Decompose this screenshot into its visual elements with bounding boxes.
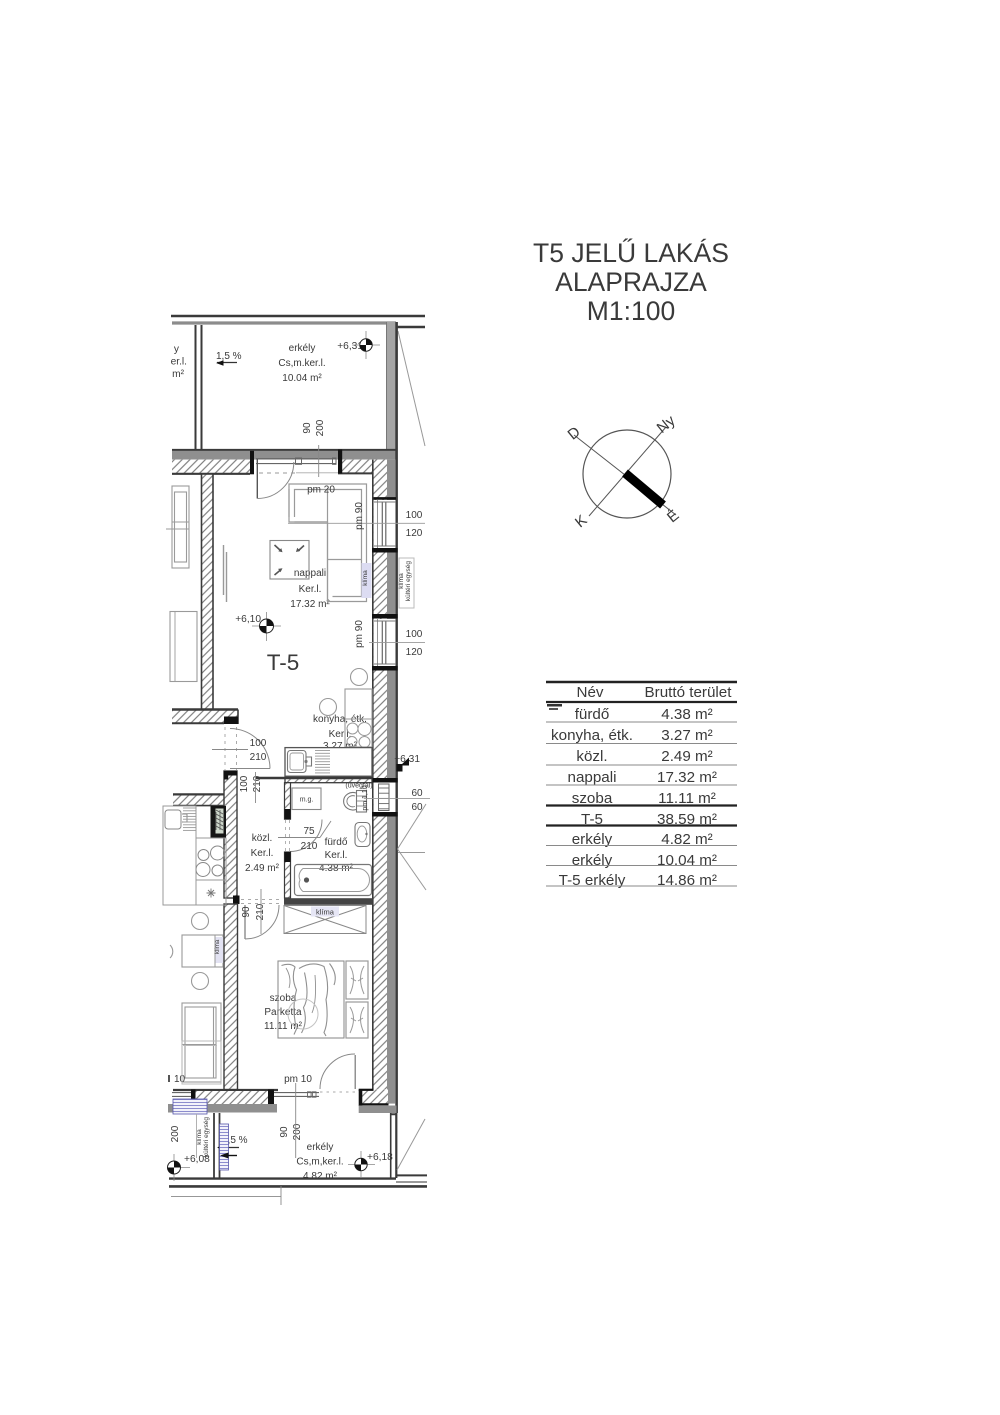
svg-text:210: 210	[250, 752, 267, 763]
svg-text:klíma: klíma	[215, 939, 221, 954]
svg-text:Cs,m,ker.l.: Cs,m,ker.l.	[296, 1157, 343, 1168]
svg-text:erkély: erkély	[307, 1142, 334, 1153]
svg-text:+6,18: +6,18	[367, 1152, 393, 1163]
svg-text:közl.: közl.	[252, 833, 273, 844]
svg-text:Bruttó terület: Bruttó terület	[645, 684, 733, 701]
svg-text:klíma: klíma	[316, 908, 335, 917]
svg-text:100: 100	[406, 510, 423, 521]
svg-text:3.27 m²: 3.27 m²	[661, 727, 713, 744]
svg-text:erkély: erkély	[289, 343, 316, 354]
svg-text:200: 200	[292, 1123, 303, 1140]
svg-text:75: 75	[303, 826, 315, 837]
svg-text:17.32 m²: 17.32 m²	[290, 599, 330, 610]
svg-text:210: 210	[255, 903, 266, 920]
svg-text:17.32 m²: 17.32 m²	[657, 769, 717, 786]
svg-text:kültéri egység: kültéri egység	[203, 1117, 210, 1157]
svg-text:Ker.l.: Ker.l.	[299, 584, 322, 595]
svg-text:120: 120	[406, 647, 423, 658]
svg-text:10.04 m²: 10.04 m²	[657, 852, 717, 869]
svg-text:klíma: klíma	[196, 1129, 203, 1145]
svg-text:Parketta: Parketta	[264, 1007, 302, 1018]
svg-text:100: 100	[250, 738, 267, 749]
svg-text:erkély: erkély	[572, 852, 613, 869]
svg-text:200: 200	[315, 419, 326, 436]
svg-text:90: 90	[302, 422, 313, 434]
svg-text:4.82 m²: 4.82 m²	[303, 1171, 338, 1182]
svg-text:m²: m²	[172, 369, 184, 380]
svg-text:pm 90: pm 90	[354, 620, 365, 648]
svg-text:+6,31: +6,31	[337, 341, 363, 352]
svg-text:kültéri egység: kültéri egység	[405, 561, 412, 601]
svg-text:nappali: nappali	[294, 568, 326, 579]
svg-text:4.38 m²: 4.38 m²	[661, 706, 713, 723]
svg-text:200: 200	[170, 1125, 181, 1142]
svg-text:100: 100	[239, 775, 250, 792]
svg-text:Ker.l.: Ker.l.	[251, 848, 274, 859]
svg-text:1,5 %: 1,5 %	[216, 351, 242, 362]
svg-text:pm 90: pm 90	[354, 502, 365, 530]
svg-text:Ker.l.: Ker.l.	[325, 850, 348, 861]
svg-text:11.11 m²: 11.11 m²	[264, 1021, 303, 1032]
svg-text:90: 90	[279, 1126, 290, 1138]
svg-text:+6,10: +6,10	[235, 614, 261, 625]
svg-text:60: 60	[411, 788, 423, 799]
svg-text:Név: Név	[576, 684, 603, 701]
svg-text:100: 100	[406, 629, 423, 640]
svg-text:pm 1,10: pm 1,10	[362, 785, 369, 810]
svg-text:T-5: T-5	[267, 650, 300, 675]
svg-text:210: 210	[301, 841, 318, 852]
svg-text:10: 10	[174, 1074, 186, 1085]
svg-text:fürdő: fürdő	[325, 837, 348, 848]
svg-text:klíma: klíma	[362, 570, 369, 586]
svg-text:10.04 m²: 10.04 m²	[282, 373, 322, 384]
svg-text:120: 120	[406, 528, 423, 539]
svg-text:közl.: közl.	[576, 748, 607, 765]
svg-text:fürdő: fürdő	[575, 706, 610, 723]
svg-text:2.49 m²: 2.49 m²	[245, 863, 280, 874]
svg-text:nappali: nappali	[568, 769, 617, 786]
svg-text:ALAPRAJZA: ALAPRAJZA	[555, 267, 707, 297]
svg-text:szoba: szoba	[270, 993, 297, 1004]
svg-text:M1:100: M1:100	[587, 296, 675, 326]
svg-text:90: 90	[241, 906, 252, 918]
svg-text:T5 JELŰ LAKÁS: T5 JELŰ LAKÁS	[533, 238, 729, 268]
svg-text:pm 20: pm 20	[307, 485, 335, 496]
svg-text:er.l.: er.l.	[171, 357, 187, 368]
svg-text:m.g.: m.g.	[300, 797, 314, 804]
svg-text:konyha, étk.: konyha, étk.	[551, 727, 633, 744]
svg-text:pm 10: pm 10	[284, 1074, 312, 1085]
svg-text:2.49 m²: 2.49 m²	[661, 748, 713, 765]
svg-text:klíma: klíma	[398, 573, 405, 589]
svg-text:Cs,m.ker.l.: Cs,m.ker.l.	[278, 358, 325, 369]
